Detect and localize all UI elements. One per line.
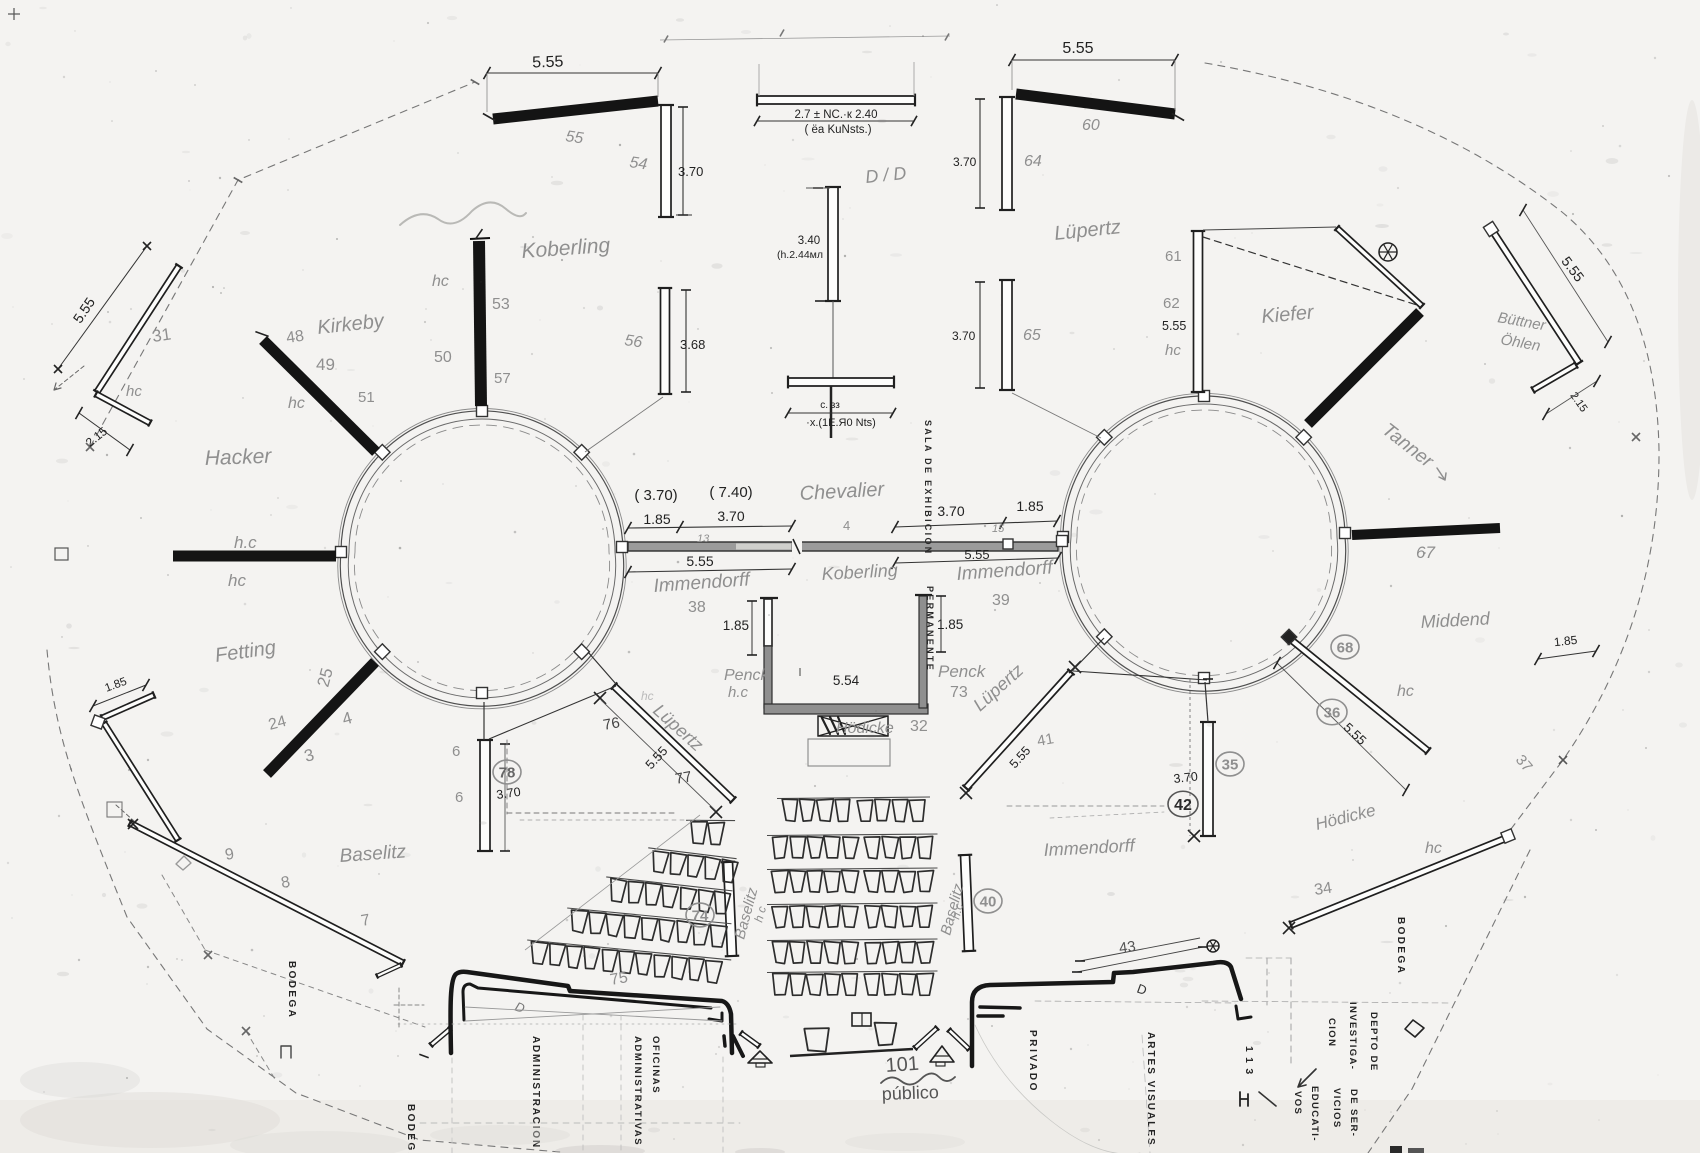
svg-text:1.85: 1.85 <box>1016 498 1043 514</box>
svg-text:39: 39 <box>992 592 1010 609</box>
svg-text:Penck: Penck <box>938 662 987 681</box>
svg-text:Middend: Middend <box>1420 608 1491 632</box>
svg-text:h.c: h.c <box>234 533 257 552</box>
svg-text:DEPTO DE: DEPTO DE <box>1368 1012 1379 1072</box>
svg-text:Hödicke: Hödicke <box>836 720 894 737</box>
svg-text:1 1 3: 1 1 3 <box>1243 1046 1255 1075</box>
svg-text:57: 57 <box>494 370 511 387</box>
svg-text:31: 31 <box>151 325 172 346</box>
svg-text:56: 56 <box>623 332 643 351</box>
svg-text:75: 75 <box>609 969 630 989</box>
svg-text:hc: hc <box>288 395 305 412</box>
svg-text:3.70: 3.70 <box>952 329 976 343</box>
svg-text:35: 35 <box>1222 756 1239 773</box>
svg-text:38: 38 <box>688 599 706 616</box>
svg-text:D / D: D / D <box>864 163 907 187</box>
svg-text:INVESTIGA-: INVESTIGA- <box>1347 1002 1358 1070</box>
svg-text:76: 76 <box>602 714 621 734</box>
svg-text:74: 74 <box>692 907 709 924</box>
svg-text:hc: hc <box>1397 683 1414 700</box>
svg-text:51: 51 <box>358 389 375 406</box>
svg-text:3.70: 3.70 <box>678 164 703 179</box>
svg-text:68: 68 <box>1337 639 1354 656</box>
svg-text:15: 15 <box>992 523 1005 535</box>
svg-text:hc: hc <box>641 689 654 703</box>
svg-text:6: 6 <box>455 789 463 806</box>
svg-text:48: 48 <box>285 328 305 347</box>
svg-text:VICIOS: VICIOS <box>1331 1088 1342 1129</box>
svg-text:65: 65 <box>1023 327 1041 344</box>
svg-text:1.85: 1.85 <box>1553 633 1578 649</box>
svg-text:Penck: Penck <box>724 667 769 684</box>
svg-text:h.c: h.c <box>728 684 749 701</box>
svg-text:13: 13 <box>697 533 710 545</box>
svg-text:( 7.40): ( 7.40) <box>709 484 752 501</box>
svg-text:hc: hc <box>228 571 246 590</box>
svg-text:( 3.70): ( 3.70) <box>634 487 677 504</box>
svg-text:43: 43 <box>1118 938 1137 957</box>
svg-text:Chevalier: Chevalier <box>799 479 886 505</box>
svg-text:hc: hc <box>1425 840 1442 857</box>
svg-text:3.70: 3.70 <box>953 155 977 169</box>
svg-text:42: 42 <box>1174 797 1192 814</box>
svg-text:3.40: 3.40 <box>798 235 820 247</box>
svg-text:34: 34 <box>1313 880 1333 899</box>
svg-text:VOS: VOS <box>1292 1091 1303 1115</box>
svg-text:OFICINAS: OFICINAS <box>650 1036 661 1094</box>
svg-text:CION: CION <box>1326 1018 1337 1047</box>
svg-text:55: 55 <box>564 128 584 147</box>
svg-text:6: 6 <box>452 743 460 760</box>
svg-text:73: 73 <box>950 684 968 701</box>
svg-text:49: 49 <box>316 355 335 374</box>
svg-text:41: 41 <box>1036 730 1055 750</box>
svg-text:5.55: 5.55 <box>964 547 989 562</box>
svg-text:61: 61 <box>1165 248 1182 265</box>
svg-text:78: 78 <box>499 764 516 781</box>
svg-text:32: 32 <box>910 718 928 735</box>
svg-text:BODEGA: BODEGA <box>286 961 297 1019</box>
svg-text:ARTES VISUALES: ARTES VISUALES <box>1145 1032 1156 1147</box>
svg-text:hc: hc <box>126 383 142 400</box>
svg-text:3.68: 3.68 <box>680 337 705 352</box>
svg-text:SALA DE EXHIBICION: SALA DE EXHIBICION <box>923 420 933 556</box>
svg-text:1.85: 1.85 <box>723 618 749 633</box>
svg-text:5.55: 5.55 <box>1162 319 1186 333</box>
svg-text:·x.(1Е.Я0 Nts): ·x.(1Е.Я0 Nts) <box>806 417 876 429</box>
svg-text:60: 60 <box>1082 117 1100 134</box>
svg-text:2.7 ± NC.·к 2.40: 2.7 ± NC.·к 2.40 <box>795 109 878 121</box>
svg-text:1.85: 1.85 <box>643 511 670 527</box>
svg-text:5.55: 5.55 <box>1062 40 1093 57</box>
svg-text:3.70: 3.70 <box>717 508 744 524</box>
svg-text:Koberling: Koberling <box>821 560 898 584</box>
svg-text:DE SER-: DE SER- <box>1348 1089 1359 1137</box>
svg-text:PRIVADO: PRIVADO <box>1027 1030 1038 1093</box>
svg-text:4: 4 <box>843 518 850 533</box>
svg-text:1.85: 1.85 <box>937 617 963 632</box>
svg-text:BODEGA: BODEGA <box>1395 917 1406 975</box>
svg-text:54: 54 <box>628 154 648 173</box>
svg-text:62: 62 <box>1163 295 1180 312</box>
svg-text:ADMINISTRATIVAS: ADMINISTRATIVAS <box>632 1036 643 1146</box>
svg-text:5.54: 5.54 <box>833 673 860 688</box>
svg-text:50: 50 <box>434 349 452 366</box>
svg-text:Kiefer: Kiefer <box>1261 301 1316 328</box>
svg-text:5.55: 5.55 <box>686 553 713 569</box>
svg-text:40: 40 <box>980 893 997 910</box>
svg-text:3.70: 3.70 <box>1173 770 1199 786</box>
svg-text:5.55: 5.55 <box>532 53 564 71</box>
svg-text:53: 53 <box>492 296 510 313</box>
svg-text:с. зз: с. зз <box>820 400 840 411</box>
svg-text:101: 101 <box>885 1053 920 1077</box>
svg-text:público: público <box>881 1082 939 1104</box>
svg-text:EDUCATI-: EDUCATI- <box>1309 1086 1320 1142</box>
svg-text:77: 77 <box>674 768 693 788</box>
svg-text:(h.2.44мл: (h.2.44мл <box>777 249 823 261</box>
svg-text:Hacker: Hacker <box>204 445 272 470</box>
svg-text:hc: hc <box>432 273 449 290</box>
svg-text:64: 64 <box>1024 153 1042 170</box>
svg-text:hc: hc <box>1165 342 1181 359</box>
svg-text:3.70: 3.70 <box>937 503 964 519</box>
svg-text:PERMANENTE: PERMANENTE <box>925 586 935 672</box>
svg-text:( ёa KuNsts.): ( ёa KuNsts.) <box>804 124 871 136</box>
svg-text:36: 36 <box>1324 704 1341 721</box>
